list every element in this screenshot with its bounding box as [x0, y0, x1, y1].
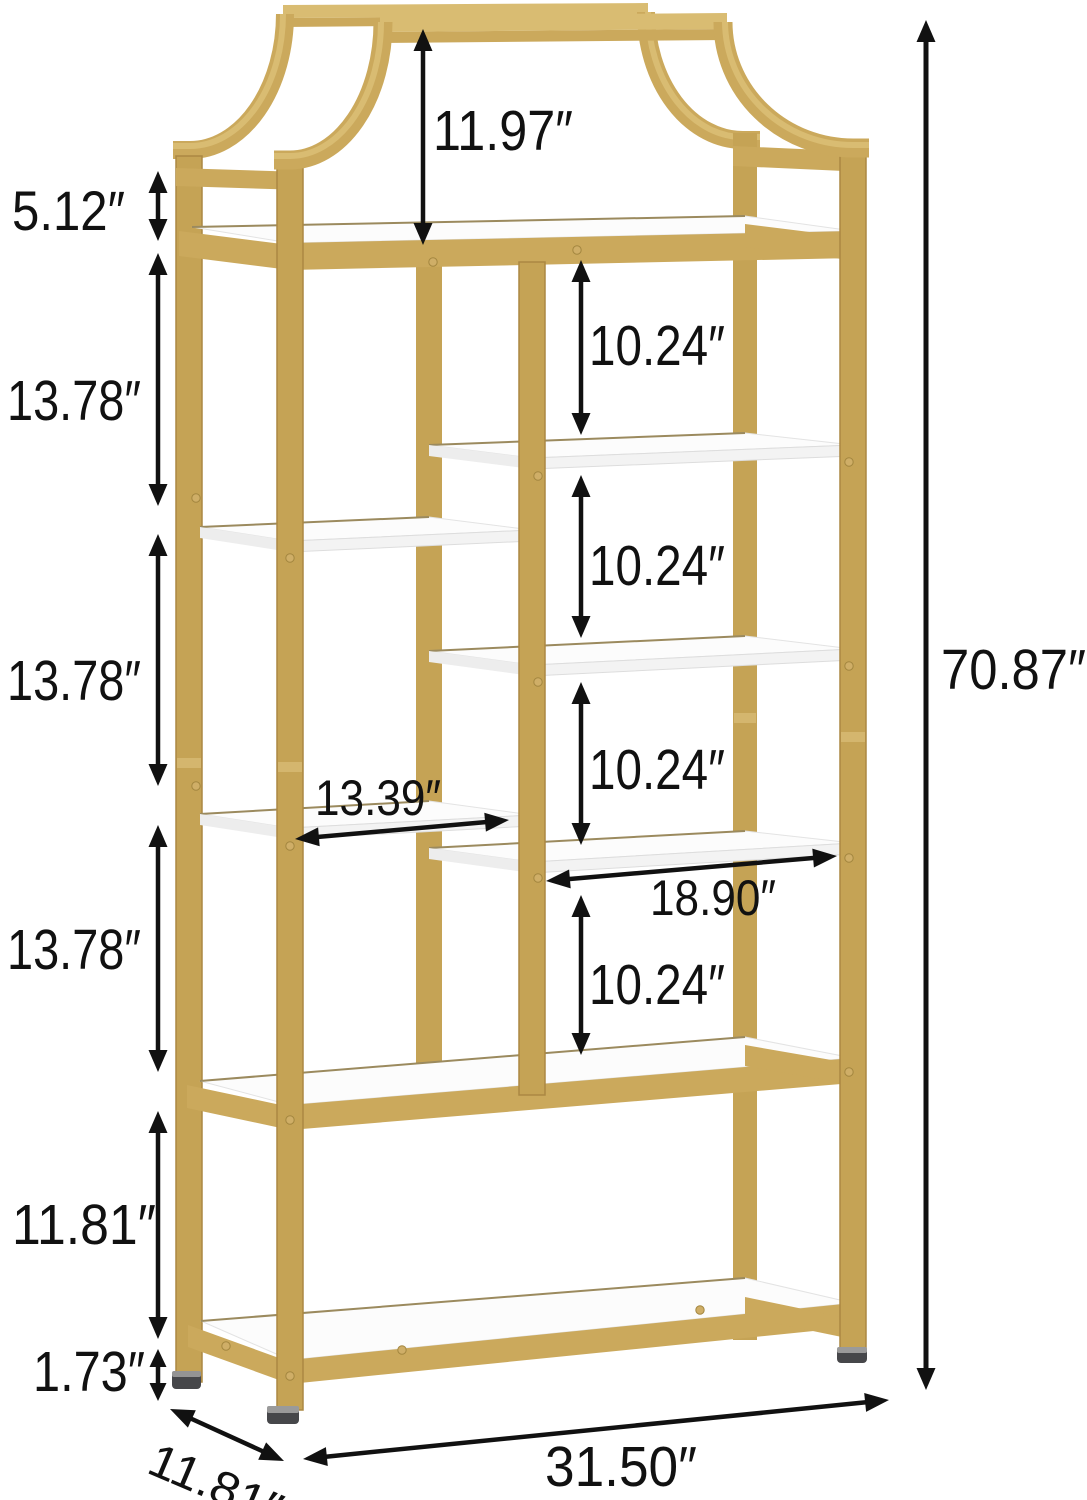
svg-text:13.78″: 13.78″ [7, 649, 141, 713]
svg-text:1.73″: 1.73″ [33, 1340, 145, 1404]
svg-text:10.24″: 10.24″ [589, 738, 725, 802]
svg-text:13.78″: 13.78″ [7, 918, 141, 982]
svg-text:13.78″: 13.78″ [7, 369, 141, 433]
svg-text:31.50″: 31.50″ [545, 1435, 697, 1499]
svg-text:70.87″: 70.87″ [941, 638, 1086, 702]
svg-text:10.24″: 10.24″ [589, 953, 725, 1017]
svg-text:5.12″: 5.12″ [12, 179, 125, 242]
svg-text:11.81″: 11.81″ [12, 1193, 156, 1257]
svg-text:11.97″: 11.97″ [433, 99, 573, 163]
svg-text:13.39″: 13.39″ [315, 770, 441, 826]
svg-text:18.90″: 18.90″ [650, 870, 776, 926]
svg-text:10.24″: 10.24″ [589, 534, 725, 598]
svg-text:10.24″: 10.24″ [589, 314, 725, 378]
